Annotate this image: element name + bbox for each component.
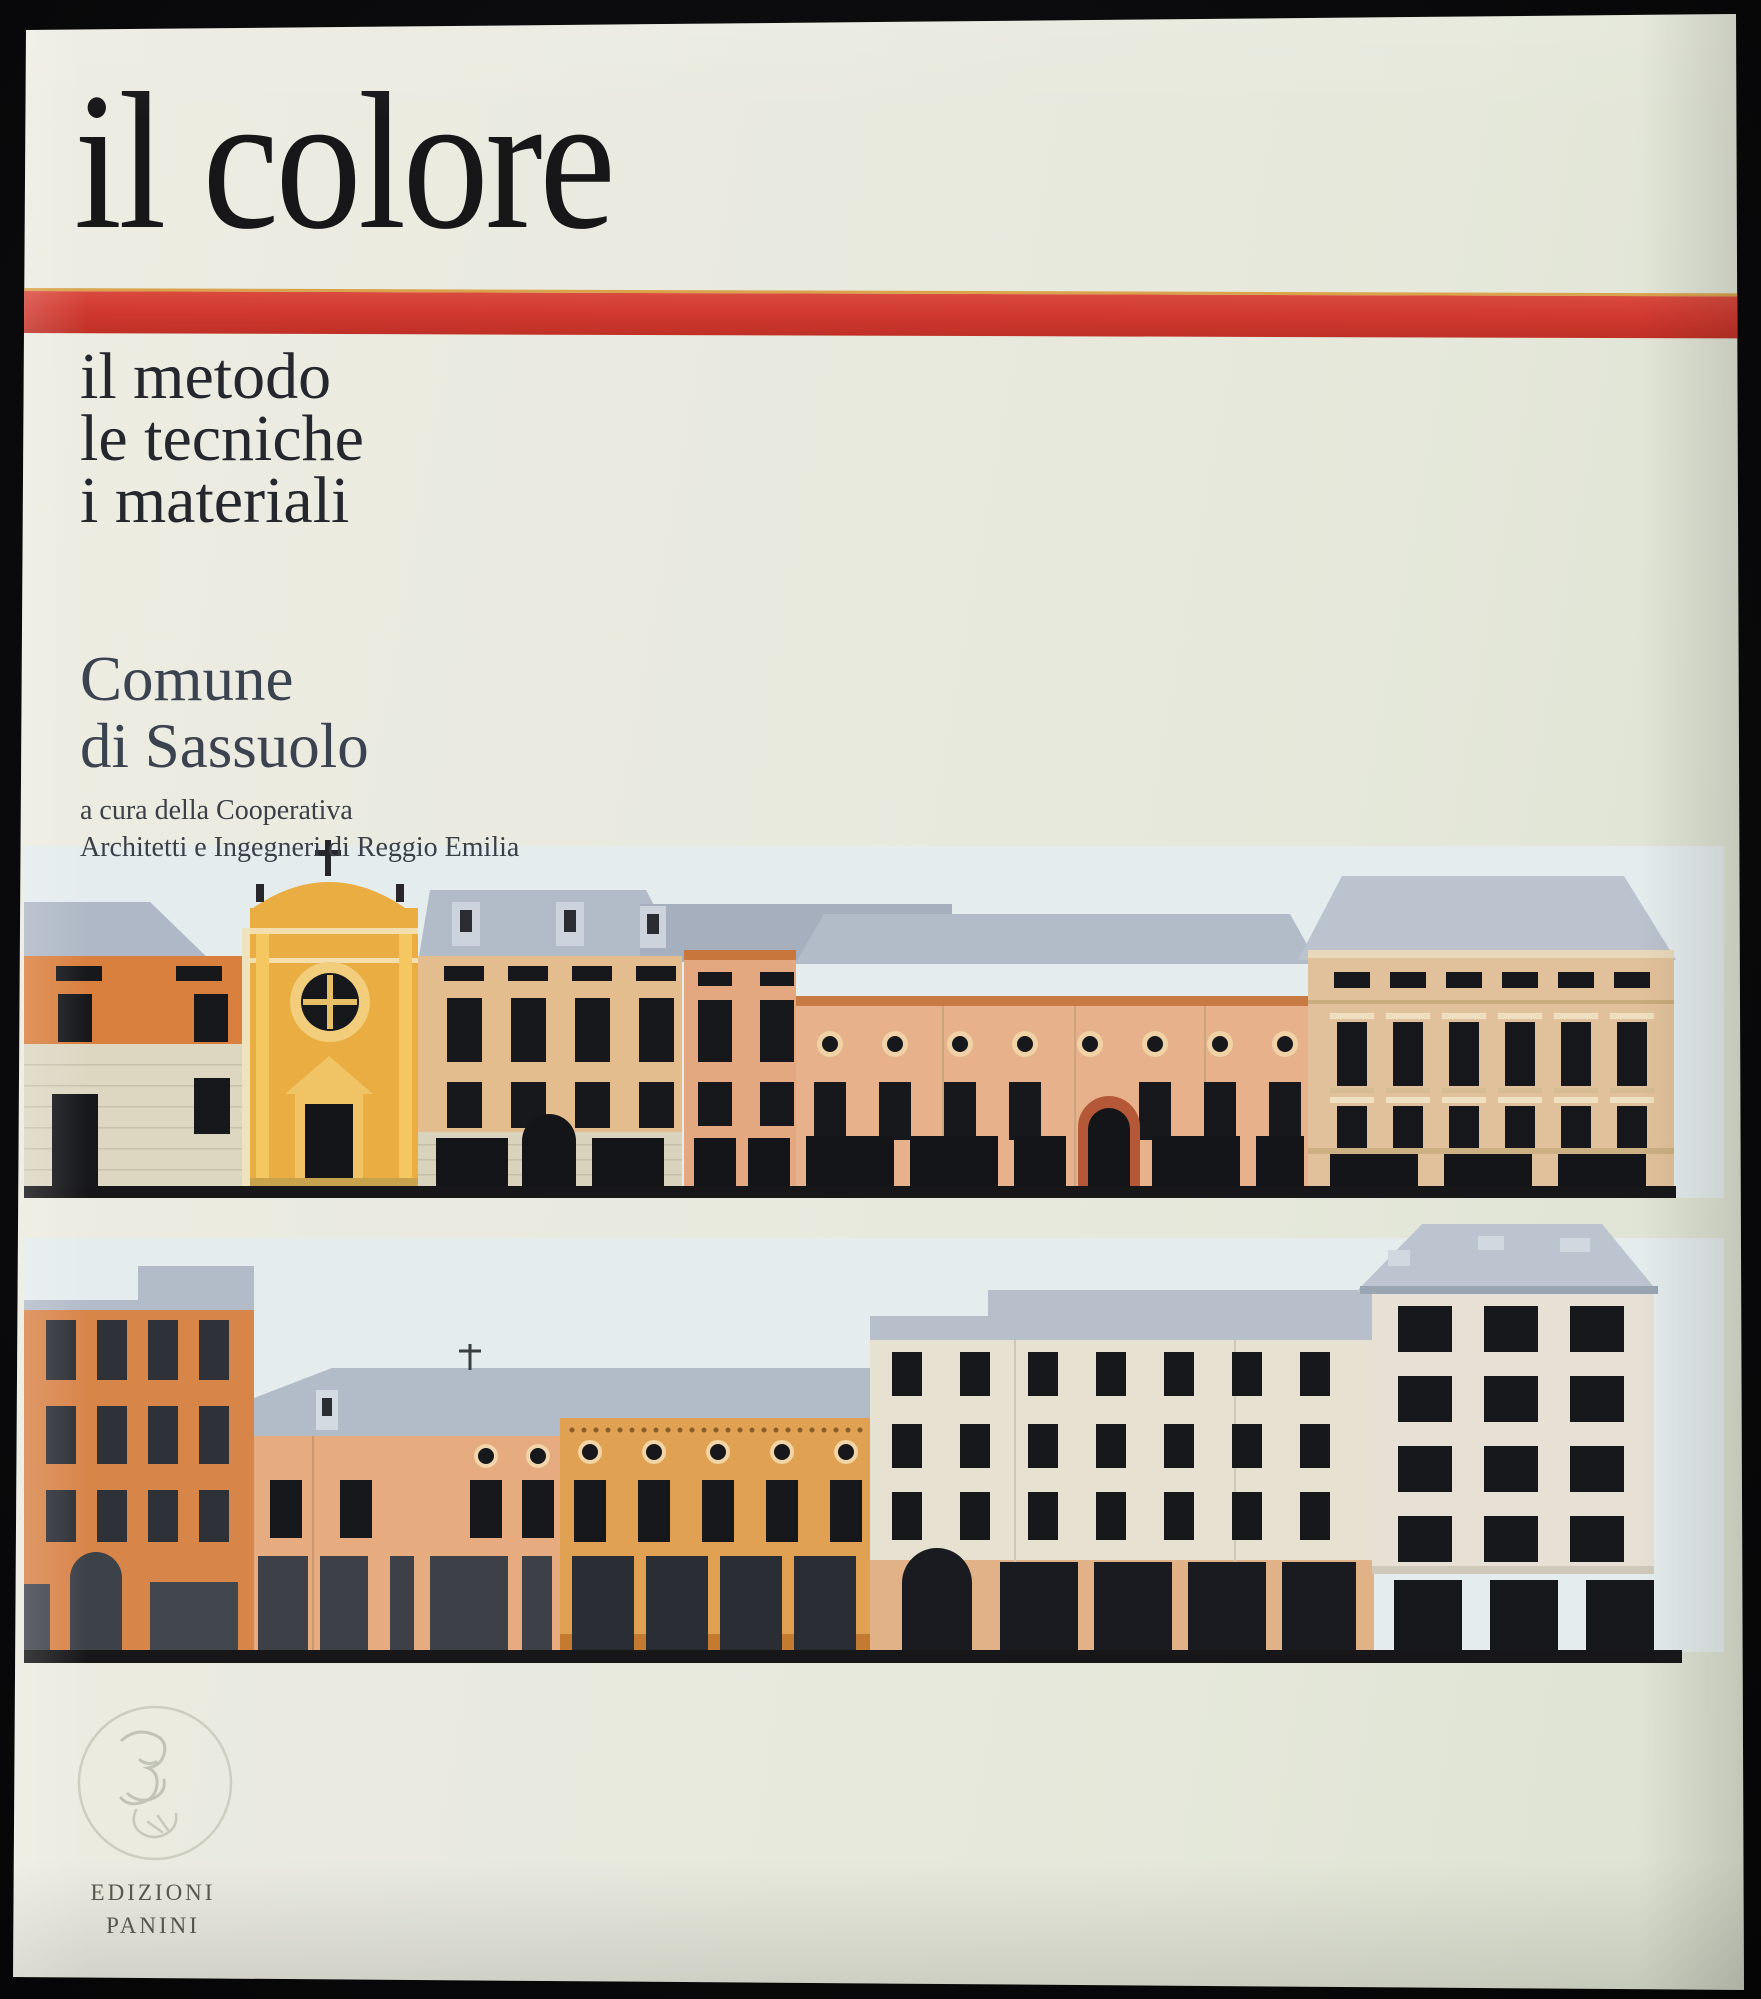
storefront [910,1136,998,1188]
storefront [1094,1562,1172,1652]
commissioner-line: Comune [80,646,369,713]
commissioner-block: Comune di Sassuolo [80,646,369,780]
storefront [1188,1562,1266,1652]
shutter [150,1582,238,1652]
storefront [1000,1562,1078,1652]
arcade [572,1556,634,1652]
subtitle-line: il metodo [80,346,364,408]
arched-door [522,1114,576,1188]
storefront [436,1138,508,1188]
storefront [1282,1562,1356,1652]
shutter [522,1556,552,1652]
church-door [305,1104,353,1188]
pilaster [399,934,412,1182]
book-cover: il colore il metodo le tecniche i materi… [0,0,1761,1999]
subtitle-line: le tecniche [80,408,364,470]
arched-door [902,1548,972,1652]
storefront [806,1136,894,1188]
chimney [1478,1236,1504,1250]
subtitle-line: i materiali [80,470,364,532]
pilaster [256,934,269,1182]
commissioner-line: di Sassuolo [80,713,369,780]
finial [396,884,404,902]
ground-line [24,1186,1676,1198]
arcade [1490,1580,1558,1652]
shutter [390,1556,414,1652]
storefront [1014,1136,1066,1188]
book-title: il colore [74,64,612,260]
shutter [24,1584,50,1652]
hip-roof [1298,876,1676,960]
arcade [794,1556,856,1652]
arcade [646,1556,708,1652]
shutter [320,1556,368,1652]
arched-door [70,1552,122,1652]
upper-street-elevation [24,840,1724,1198]
arcade [1394,1580,1462,1652]
finial [256,884,264,902]
arcade [720,1556,782,1652]
publisher-imprint-line: PANINI [42,1909,264,1942]
publisher-imprint: EDIZIONI PANINI [42,1876,264,1942]
storefront [1256,1136,1304,1188]
chimney [1560,1238,1590,1252]
shutter [258,1556,308,1652]
book-cover-photo: il colore il metodo le tecniche i materi… [0,0,1761,1999]
ground-line [24,1650,1682,1663]
publisher-emblem-stamp-icon [70,1698,240,1868]
roof [795,914,1318,964]
curator-line: Architetti e Ingegneri di Reggio Emilia [80,829,519,866]
chimney [1388,1250,1410,1266]
curator-block: a cura della Cooperativa Architetti e In… [80,792,519,866]
arcade [1586,1580,1654,1652]
storefront [1152,1136,1240,1188]
lower-street-elevation [24,1224,1724,1663]
curator-line: a cura della Cooperativa [80,792,519,829]
shutter [430,1556,508,1652]
red-accent-stripe [10,288,1750,338]
storefront [592,1138,664,1188]
publisher-imprint-line: EDIZIONI [42,1876,264,1909]
subtitle-block: il metodo le tecniche i materiali [80,346,364,532]
